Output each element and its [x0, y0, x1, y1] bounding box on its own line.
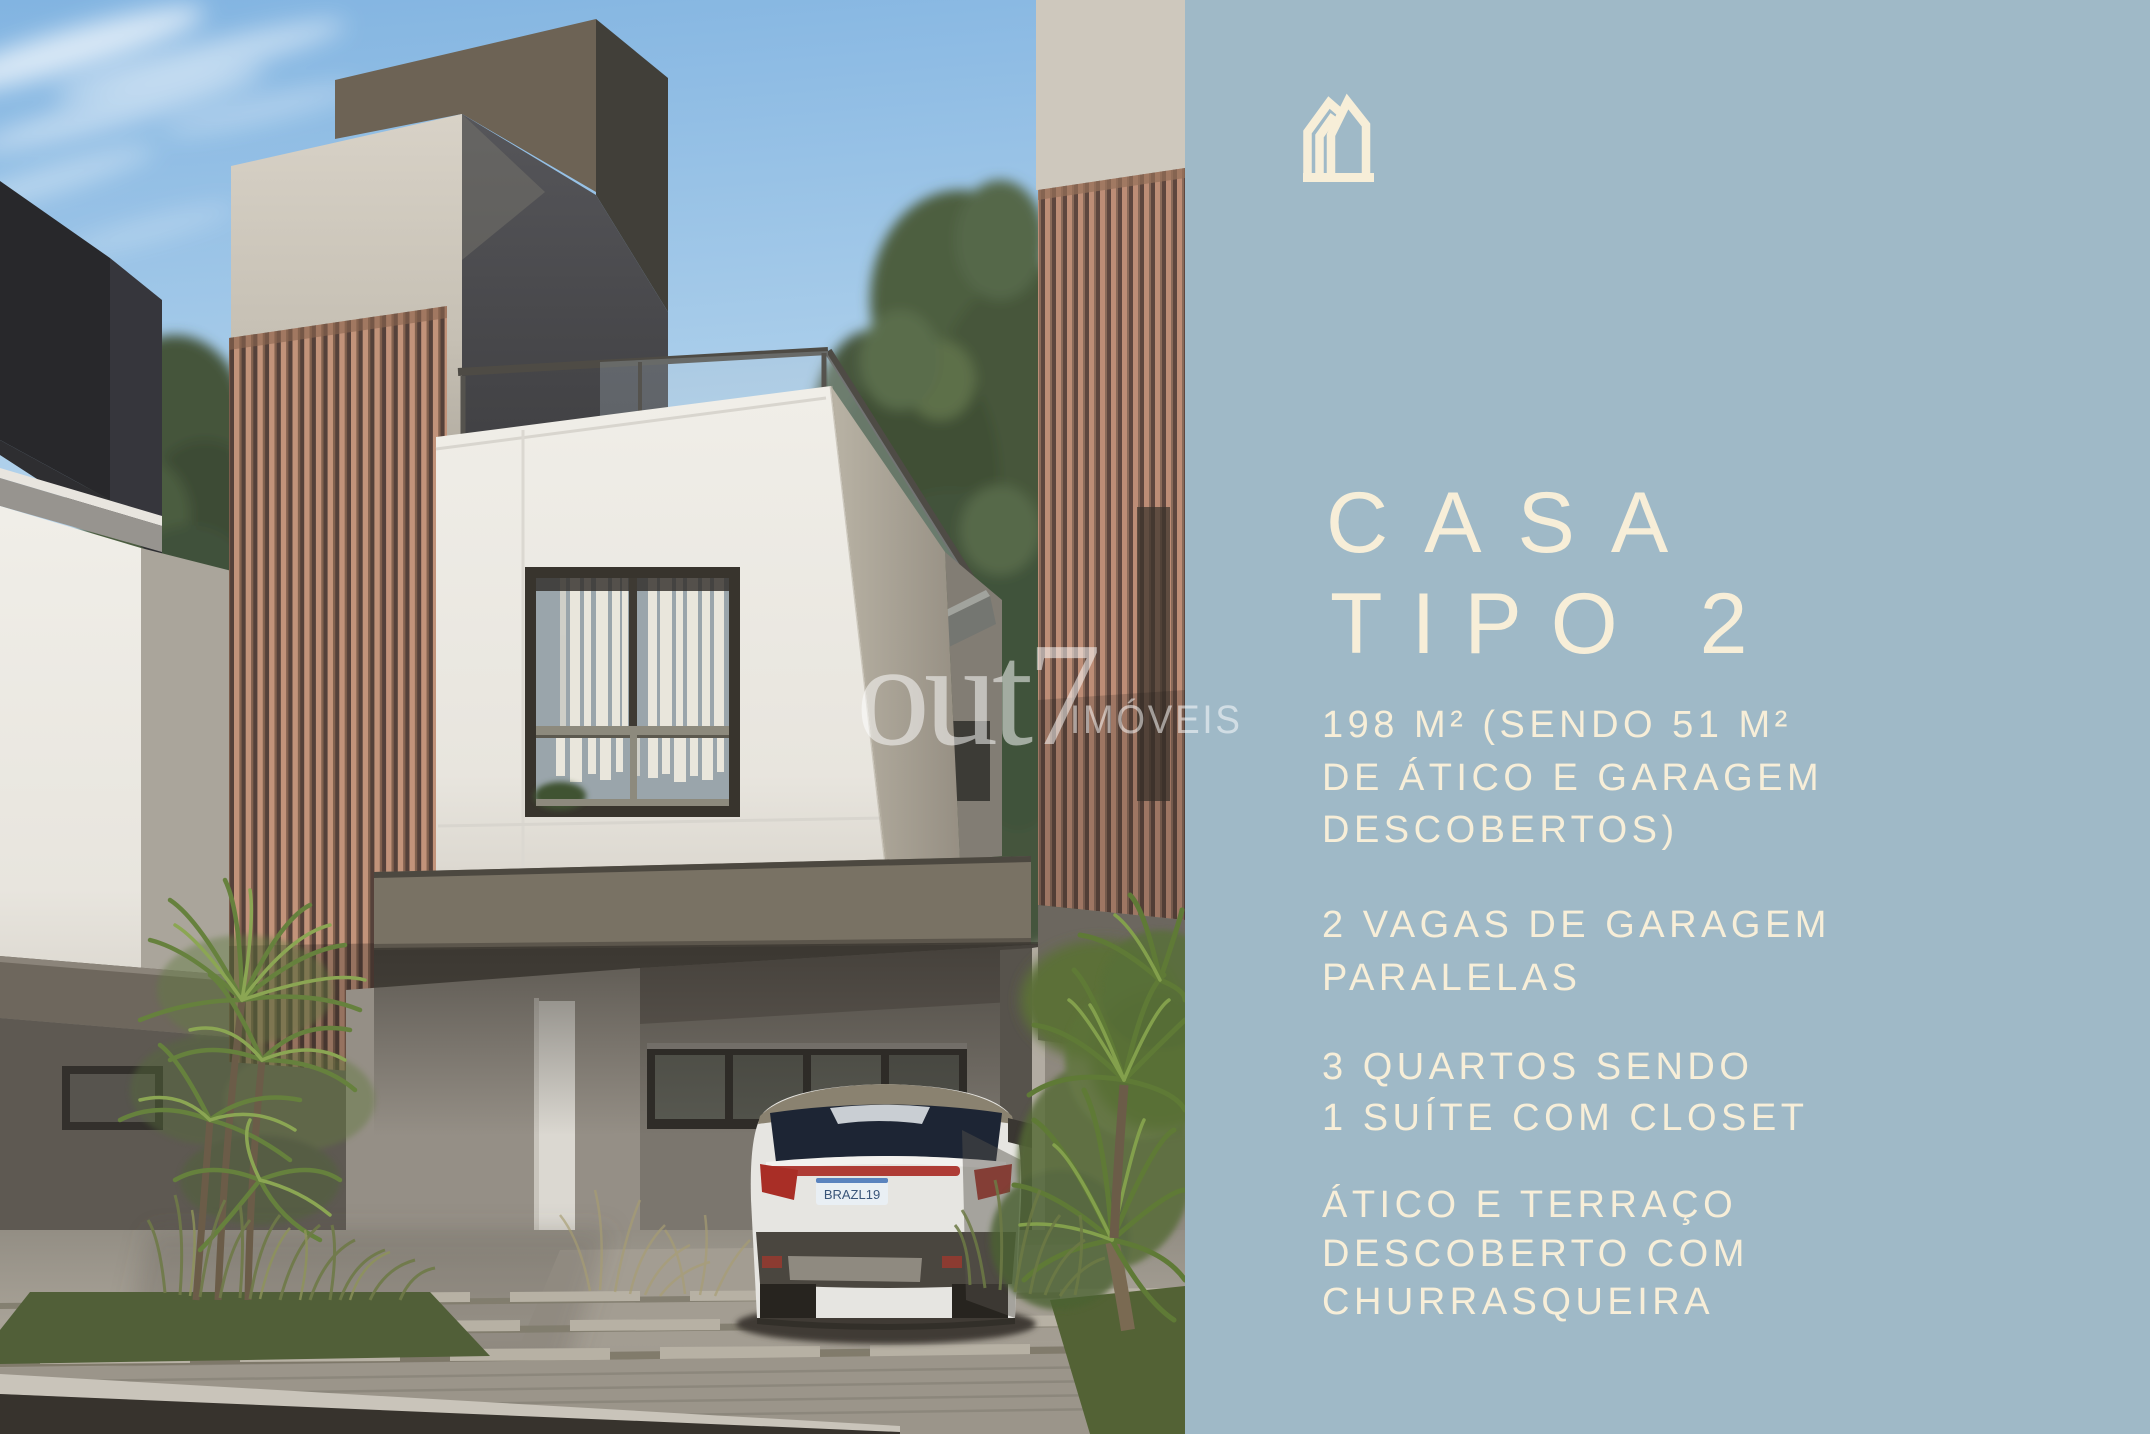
svg-text:BRAZL19: BRAZL19: [824, 1187, 880, 1202]
